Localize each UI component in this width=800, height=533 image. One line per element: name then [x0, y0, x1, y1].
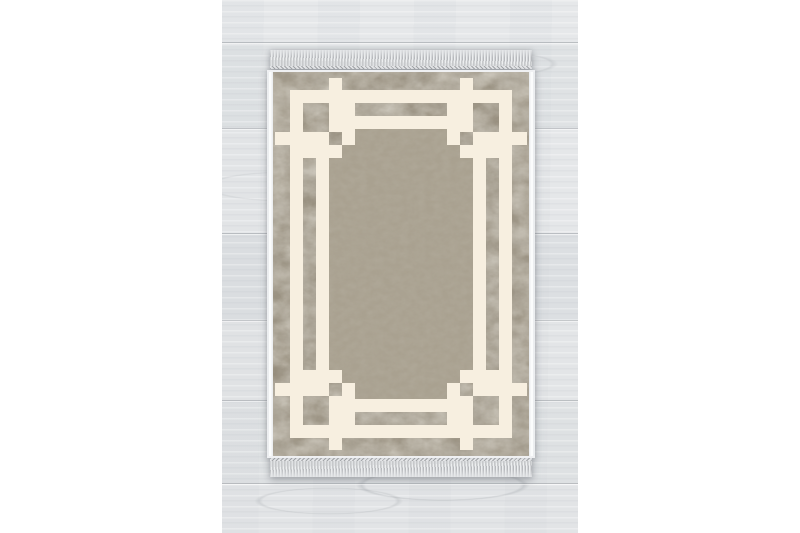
fringe-top [270, 50, 532, 69]
fringe-binding [270, 458, 532, 461]
rug [267, 50, 535, 478]
fringe-binding [270, 66, 532, 69]
page [0, 0, 800, 533]
rug-body [267, 70, 535, 458]
product-photo [222, 0, 578, 533]
fringe-bottom [270, 458, 532, 477]
white-margin-left [0, 0, 222, 533]
white-margin-right [578, 0, 800, 533]
